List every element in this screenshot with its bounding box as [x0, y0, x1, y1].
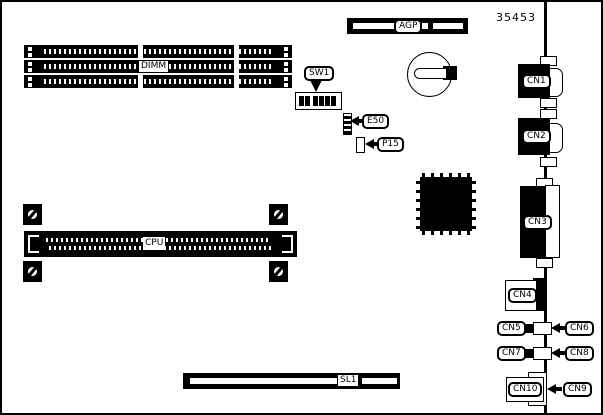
dimm-key-notch [234, 45, 239, 58]
cpu-retention-hole [23, 261, 42, 282]
cn8-label: CN8 [565, 346, 594, 361]
sw1-dip-switch [295, 92, 342, 110]
cpu-retention-hole [23, 204, 42, 225]
dimm-key-notch [138, 45, 143, 58]
cpu-label: CPU [143, 237, 165, 250]
mounting-tab [540, 157, 557, 167]
cn8-port [533, 347, 552, 360]
cn5-label: CN5 [497, 321, 526, 336]
mounting-tab [540, 98, 557, 108]
cn6-label: CN6 [565, 321, 594, 336]
dimm-slot-1 [24, 45, 292, 58]
cn9-label: CN9 [563, 382, 592, 397]
p15-label: P15 [377, 137, 404, 152]
sw1-label: SW1 [304, 66, 334, 81]
cn2-label: CN2 [522, 129, 551, 144]
chipset-chip [420, 177, 472, 231]
mounting-tab [536, 258, 553, 268]
part-number: 35453 [496, 11, 536, 24]
cn3-label: CN3 [523, 215, 552, 230]
slot-stripe [190, 378, 337, 384]
sl1-slot [183, 373, 400, 389]
cn2-port [549, 123, 563, 153]
cn1-label: CN1 [522, 74, 551, 89]
slot-stripe [433, 23, 463, 29]
cn9-arrow-stem [555, 387, 562, 391]
dimm-key-notch [234, 60, 239, 73]
cn1-port [549, 68, 563, 97]
slot-stripe [353, 23, 396, 29]
dimm-label: DIMM [138, 60, 169, 73]
cpu-bracket-left [28, 235, 39, 253]
dimm-key-notch [234, 75, 239, 88]
dimm-key-notch [138, 75, 143, 88]
cpu-retention-hole [269, 261, 288, 282]
slot-stripe [362, 378, 397, 384]
p15-header [356, 137, 365, 153]
cpu-bracket-right [282, 235, 293, 253]
motherboard-diagram: 35453 AGP DIMM SW1 E50 P [0, 0, 603, 415]
cpu-retention-hole [269, 204, 288, 225]
cn6-port [533, 322, 552, 335]
e50-label: E50 [362, 114, 389, 129]
sl1-label: SL1 [337, 374, 359, 387]
sw1-pointer [310, 80, 322, 92]
cn4-label: CN4 [508, 288, 537, 303]
dimm-slot-3 [24, 75, 292, 88]
battery-clip [414, 68, 447, 79]
cn10-label: CN10 [508, 382, 542, 397]
cn7-label: CN7 [497, 346, 526, 361]
slot-stripe [421, 23, 428, 29]
agp-label: AGP [394, 19, 422, 34]
